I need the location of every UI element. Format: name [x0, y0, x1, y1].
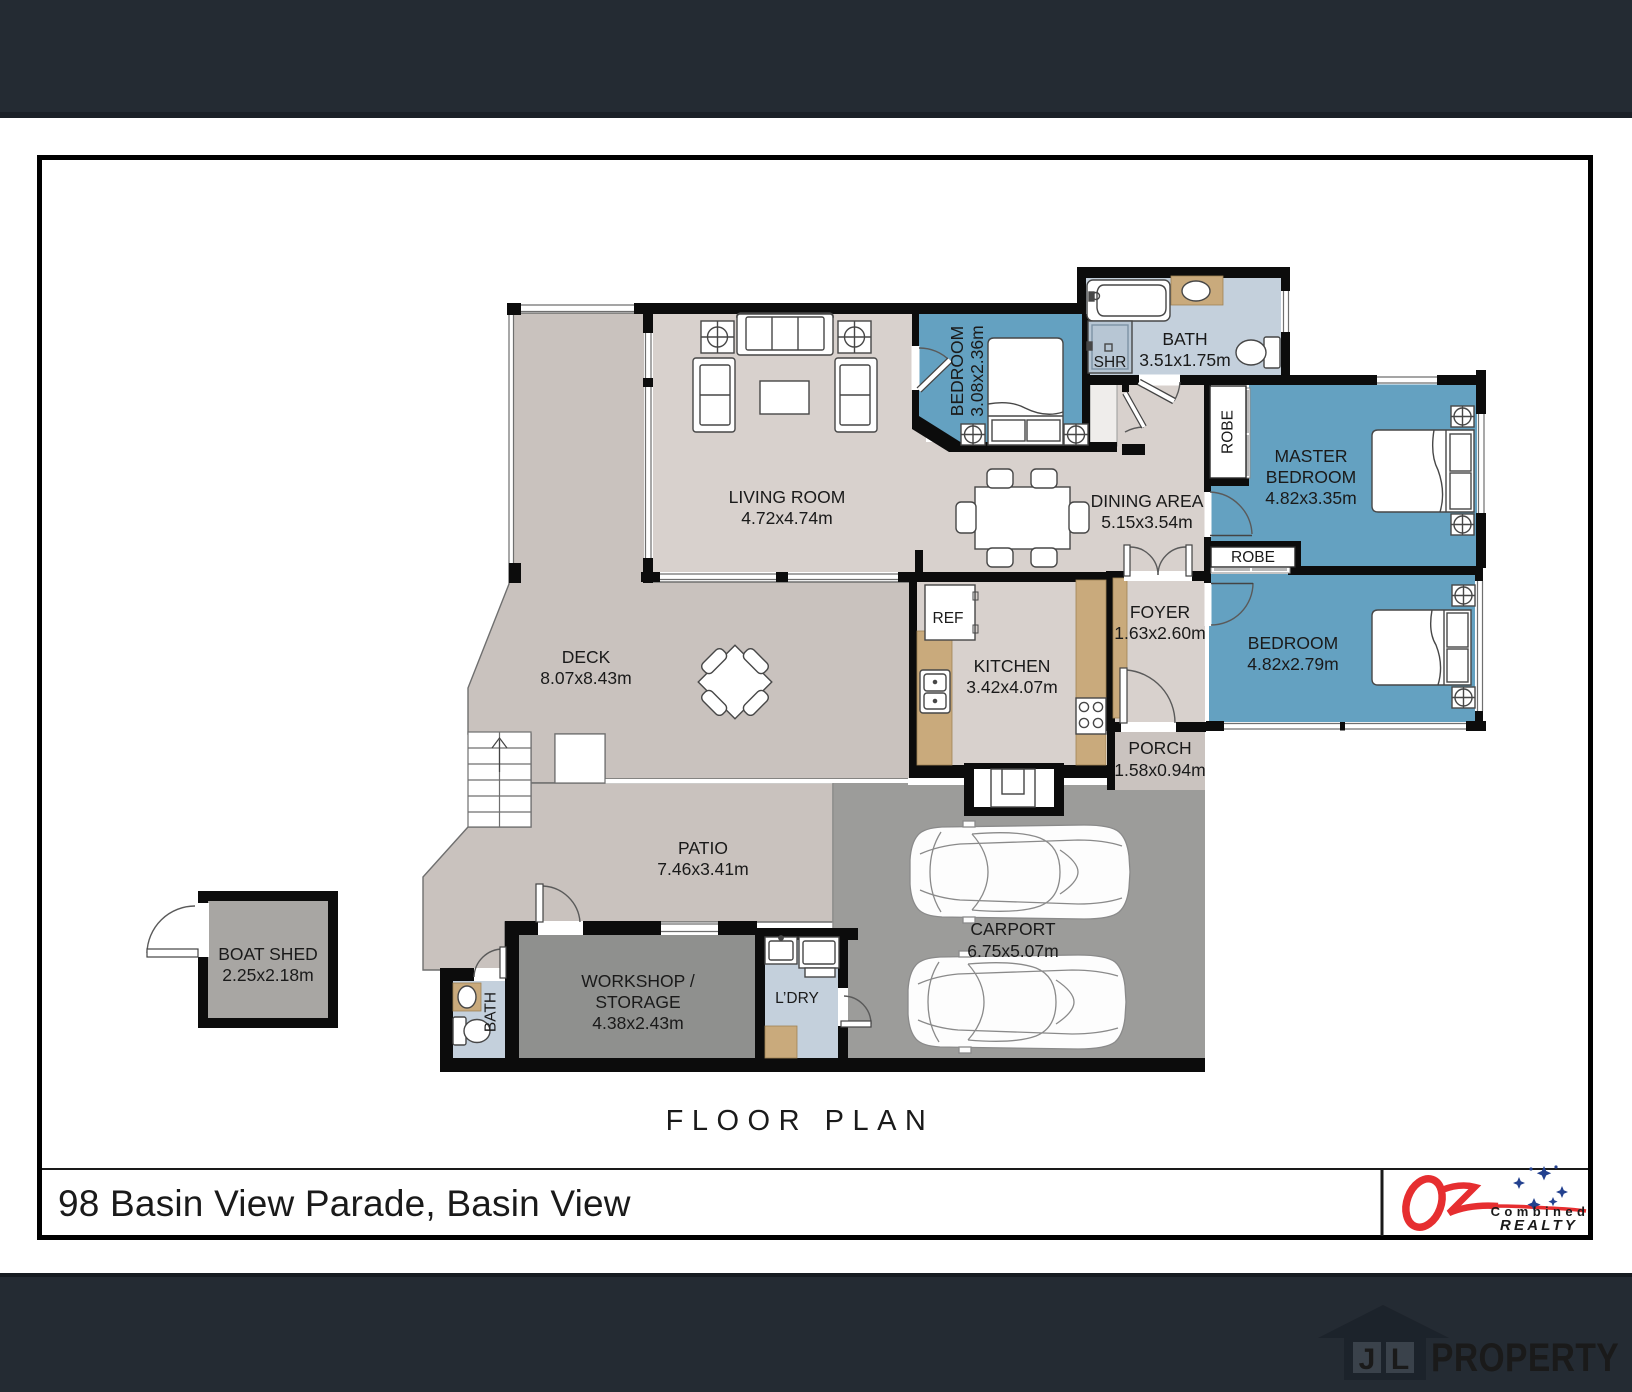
svg-text:L: L	[1391, 1343, 1409, 1376]
svg-text:KITCHEN: KITCHEN	[974, 656, 1051, 676]
svg-text:ROBE: ROBE	[1231, 549, 1275, 566]
svg-text:REF: REF	[933, 610, 964, 627]
svg-text:1.58x0.94m: 1.58x0.94m	[1114, 760, 1205, 780]
svg-text:7.46x3.41m: 7.46x3.41m	[657, 859, 748, 879]
svg-text:PATIO: PATIO	[678, 838, 728, 858]
svg-text:PROPERTY: PROPERTY	[1431, 1335, 1619, 1379]
svg-text:BEDROOM: BEDROOM	[1248, 633, 1338, 653]
svg-text:3.42x4.07m: 3.42x4.07m	[966, 677, 1057, 697]
svg-text:FOYER: FOYER	[1130, 602, 1190, 622]
svg-text:WORKSHOP /: WORKSHOP /	[581, 971, 695, 991]
svg-text:4.82x2.79m: 4.82x2.79m	[1247, 654, 1338, 674]
svg-text:4.72x4.74m: 4.72x4.74m	[741, 508, 832, 528]
svg-text:1.63x2.60m: 1.63x2.60m	[1114, 623, 1205, 643]
svg-text:FLOOR PLAN: FLOOR PLAN	[666, 1105, 935, 1137]
svg-text:3.51x1.75m: 3.51x1.75m	[1139, 350, 1230, 370]
svg-text:SHR: SHR	[1094, 354, 1127, 371]
svg-text:STORAGE: STORAGE	[595, 992, 680, 1012]
svg-text:DECK: DECK	[562, 647, 611, 667]
svg-text:DINING AREA: DINING AREA	[1091, 491, 1204, 511]
svg-text:98 Basin View Parade, Basin Vi: 98 Basin View Parade, Basin View	[58, 1183, 631, 1224]
svg-text:6.75x5.07m: 6.75x5.07m	[967, 941, 1058, 961]
svg-text:CARPORT: CARPORT	[970, 919, 1056, 939]
svg-text:8.07x8.43m: 8.07x8.43m	[540, 668, 631, 688]
svg-text:2.25x2.18m: 2.25x2.18m	[222, 965, 313, 985]
svg-text:ROBE: ROBE	[1220, 410, 1237, 454]
svg-text:REALTY: REALTY	[1500, 1217, 1578, 1234]
svg-text:5.15x3.54m: 5.15x3.54m	[1101, 512, 1192, 532]
svg-text:3.08x2.36m: 3.08x2.36m	[967, 325, 987, 416]
svg-text:4.38x2.43m: 4.38x2.43m	[592, 1013, 683, 1033]
svg-text:BATH: BATH	[483, 992, 500, 1032]
svg-text:4.82x3.35m: 4.82x3.35m	[1265, 488, 1356, 508]
svg-text:BEDROOM: BEDROOM	[947, 326, 967, 416]
svg-text:MASTER: MASTER	[1275, 446, 1348, 466]
svg-text:J: J	[1359, 1343, 1376, 1376]
svg-text:BEDROOM: BEDROOM	[1266, 467, 1356, 487]
svg-text:PORCH: PORCH	[1128, 738, 1191, 758]
svg-text:LIVING ROOM: LIVING ROOM	[729, 487, 846, 507]
svg-text:L’DRY: L’DRY	[775, 990, 819, 1007]
svg-text:BATH: BATH	[1162, 329, 1207, 349]
svg-text:BOAT SHED: BOAT SHED	[218, 944, 318, 964]
